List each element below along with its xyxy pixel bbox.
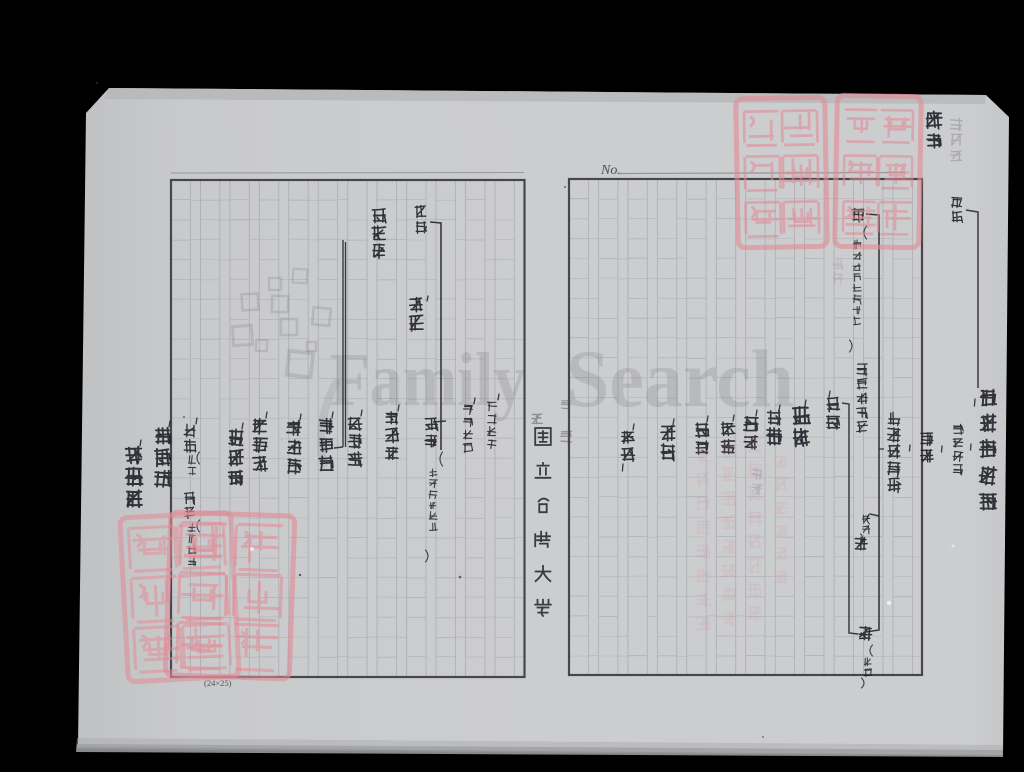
svg-text:Search: Search (566, 333, 794, 424)
svg-text:No.: No. (600, 163, 621, 178)
svg-text:(24×25): (24×25) (204, 678, 232, 688)
svg-text:Family: Family (330, 338, 526, 422)
